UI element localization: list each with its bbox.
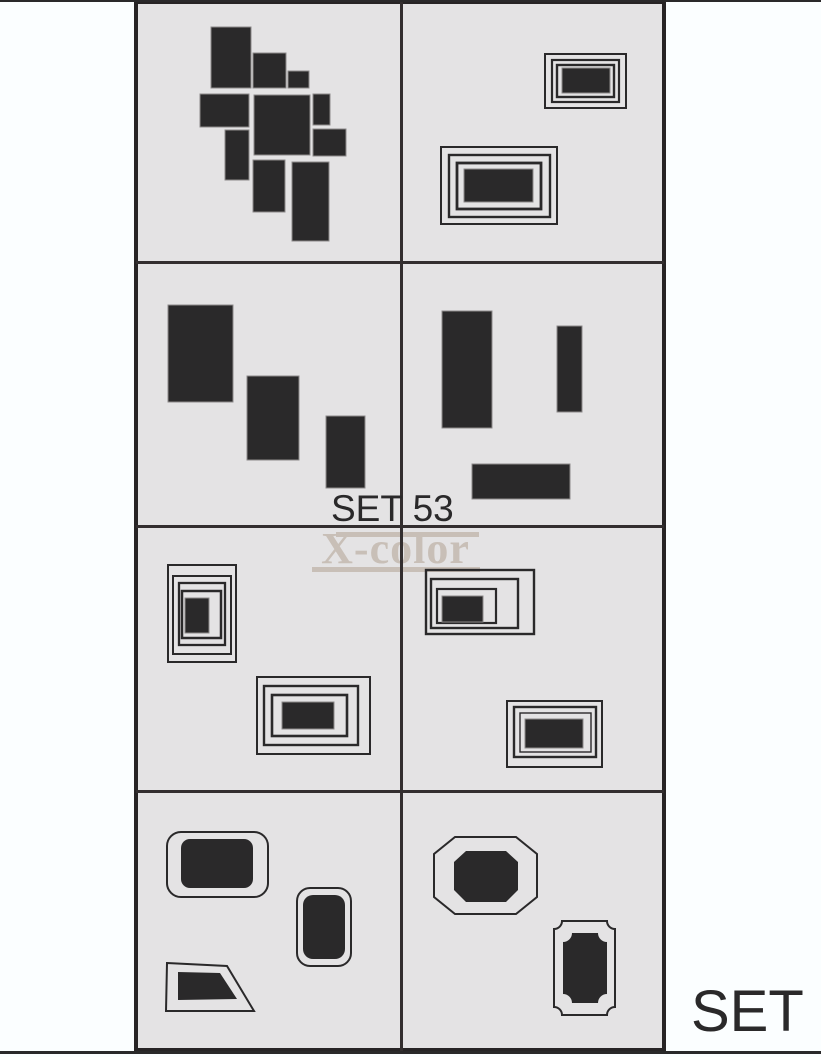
bottom-border-line xyxy=(0,1051,821,1054)
watermark-underline xyxy=(312,567,480,572)
product-sheet: X-color SET 53 SET xyxy=(0,0,821,1057)
set-corner-label: SET xyxy=(691,983,804,1041)
set-number-label: SET 53 xyxy=(331,490,454,527)
top-border-line xyxy=(0,0,821,2)
grid-row-divider-1 xyxy=(136,261,664,264)
watermark-text: X-color xyxy=(308,527,483,571)
grid-row-divider-3 xyxy=(136,790,664,793)
